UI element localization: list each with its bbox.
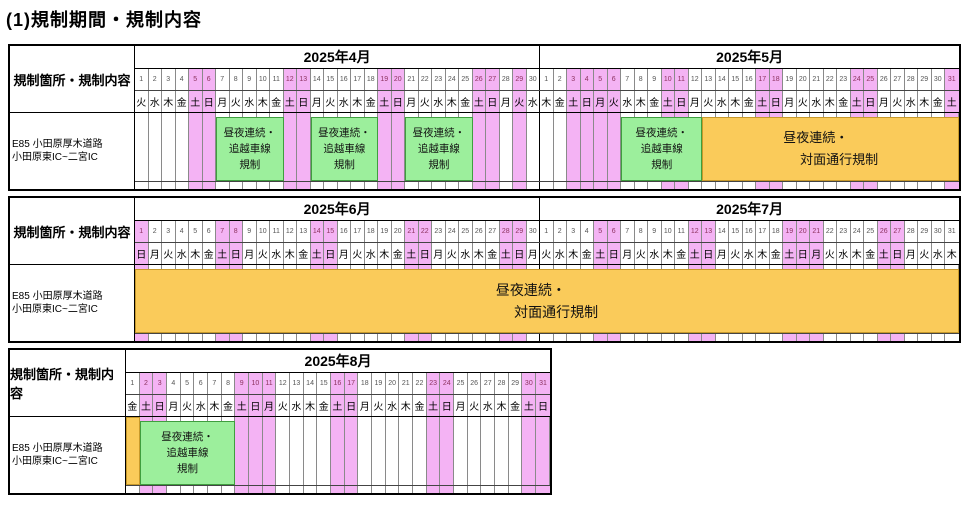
day-of-week-cell: 金 bbox=[270, 91, 284, 112]
schedule-block: 規制箇所・規制内容E85 小田原厚木道路小田原東IC~二宮IC2025年8月12… bbox=[8, 348, 552, 495]
bottom-strip-cell bbox=[945, 334, 959, 341]
bar-label-line: 追越車線 bbox=[323, 141, 365, 157]
day-number-cell: 29 bbox=[918, 221, 932, 242]
day-of-week-cell: 木 bbox=[729, 91, 743, 112]
day-number-cell: 2 bbox=[149, 69, 163, 90]
bottom-strip-cell bbox=[945, 182, 959, 189]
bar-label-line: 追越車線 bbox=[641, 141, 683, 157]
row-header-cell: 規制箇所・規制内容 bbox=[10, 198, 134, 265]
bottom-strip-cell bbox=[513, 182, 527, 189]
day-column bbox=[203, 113, 217, 181]
bottom-strip-cell bbox=[153, 486, 167, 493]
schedule-row: 昼夜連続・追越車線規制 bbox=[126, 417, 550, 486]
bottom-strip-cell bbox=[509, 486, 523, 493]
day-column bbox=[284, 113, 298, 181]
bottom-strip-cell bbox=[878, 334, 892, 341]
day-number-row: 1234567891011121314151617181920212223242… bbox=[135, 221, 959, 243]
day-of-week-cell: 土 bbox=[783, 243, 797, 264]
bottom-strip-cell bbox=[162, 334, 176, 341]
regulation-bar-contraflow: 昼夜連続・対面通行規制 bbox=[135, 269, 959, 333]
day-of-week-cell: 火 bbox=[468, 395, 482, 416]
bottom-strip-cell bbox=[689, 334, 703, 341]
day-number-cell: 13 bbox=[297, 221, 311, 242]
day-number-cell: 15 bbox=[729, 221, 743, 242]
bottom-strip-cell bbox=[851, 182, 865, 189]
day-of-week-cell: 水 bbox=[648, 243, 662, 264]
day-column bbox=[331, 417, 345, 485]
day-of-week-cell: 土 bbox=[311, 243, 325, 264]
day-number-cell: 16 bbox=[338, 221, 352, 242]
bottom-strip-cell bbox=[181, 486, 195, 493]
bottom-strip-cell bbox=[608, 182, 622, 189]
bottom-strip-cell bbox=[378, 334, 392, 341]
day-of-week-cell: 日 bbox=[770, 91, 784, 112]
section-label-line: 小田原東IC~二宮IC bbox=[12, 303, 134, 316]
day-of-week-cell: 日 bbox=[135, 243, 149, 264]
bottom-strip-cell bbox=[162, 182, 176, 189]
day-number-cell: 1 bbox=[540, 221, 554, 242]
bottom-strip-cell bbox=[891, 182, 905, 189]
day-of-week-cell: 日 bbox=[797, 243, 811, 264]
day-of-week-cell: 水 bbox=[338, 91, 352, 112]
day-of-week-cell: 火 bbox=[351, 243, 365, 264]
day-of-week-cell: 木 bbox=[446, 91, 460, 112]
bottom-strip-cell bbox=[513, 334, 527, 341]
bottom-strip-cell bbox=[358, 486, 372, 493]
day-column bbox=[594, 113, 608, 181]
day-number-cell: 8 bbox=[230, 221, 244, 242]
day-of-week-cell: 月 bbox=[716, 243, 730, 264]
day-of-week-cell: 金 bbox=[743, 91, 757, 112]
bottom-strip-cell bbox=[473, 334, 487, 341]
bottom-strip-cell bbox=[446, 334, 460, 341]
bottom-strip-cell bbox=[440, 486, 454, 493]
day-column bbox=[345, 417, 359, 485]
day-column bbox=[263, 417, 277, 485]
bottom-strip-cell bbox=[399, 486, 413, 493]
day-number-cell: 20 bbox=[392, 69, 406, 90]
bottom-strip-cell bbox=[230, 182, 244, 189]
day-number-cell: 19 bbox=[378, 69, 392, 90]
month-header: 2025年4月 bbox=[135, 46, 540, 68]
day-number-cell: 21 bbox=[810, 69, 824, 90]
day-column bbox=[304, 417, 318, 485]
day-of-week-cell: 日 bbox=[486, 91, 500, 112]
day-column bbox=[495, 417, 509, 485]
day-number-cell: 9 bbox=[648, 69, 662, 90]
day-of-week-cell: 木 bbox=[756, 243, 770, 264]
bar-label: 昼夜連続・対面通行規制 bbox=[496, 279, 598, 323]
day-number-cell: 17 bbox=[756, 221, 770, 242]
bottom-strip-cell bbox=[824, 334, 838, 341]
bar-label-line: 昼夜連続・ bbox=[318, 125, 371, 141]
page: (1)規制期間・規制内容 規制箇所・規制内容E85 小田原厚木道路小田原東IC~… bbox=[0, 0, 972, 506]
day-of-week-cell: 水 bbox=[481, 395, 495, 416]
day-number-cell: 15 bbox=[729, 69, 743, 90]
day-column bbox=[149, 113, 163, 181]
day-of-week-cell: 日 bbox=[345, 395, 359, 416]
day-of-week-cell: 土 bbox=[140, 395, 154, 416]
day-number-cell: 5 bbox=[181, 373, 195, 394]
day-number-cell: 27 bbox=[891, 69, 905, 90]
day-number-cell: 1 bbox=[135, 221, 149, 242]
day-number-cell: 20 bbox=[797, 221, 811, 242]
day-number-cell: 5 bbox=[594, 221, 608, 242]
day-of-week-cell: 火 bbox=[419, 91, 433, 112]
day-number-cell: 23 bbox=[432, 69, 446, 90]
day-number-cell: 12 bbox=[276, 373, 290, 394]
day-of-week-cell: 土 bbox=[567, 91, 581, 112]
day-number-cell: 7 bbox=[621, 69, 635, 90]
day-of-week-cell: 火 bbox=[446, 243, 460, 264]
day-number-cell: 1 bbox=[135, 69, 149, 90]
day-number-cell: 13 bbox=[297, 69, 311, 90]
day-number-cell: 18 bbox=[770, 221, 784, 242]
bar-label-line: 昼夜連続・ bbox=[224, 125, 277, 141]
bottom-strip-cell bbox=[635, 334, 649, 341]
day-number-row: 1234567891011121314151617181920212223242… bbox=[135, 69, 959, 91]
day-number-cell: 23 bbox=[837, 221, 851, 242]
bottom-strip-cell bbox=[432, 182, 446, 189]
day-number-cell: 4 bbox=[167, 373, 181, 394]
bar-label-line: 規制 bbox=[239, 157, 260, 173]
section-label-line: E85 小田原厚木道路 bbox=[12, 290, 134, 303]
bottom-strip-cell bbox=[249, 486, 263, 493]
day-column bbox=[249, 417, 263, 485]
bottom-strip-cell bbox=[756, 182, 770, 189]
day-number-cell: 19 bbox=[783, 221, 797, 242]
calendar-area: 2025年6月2025年7月12345678910111213141516171… bbox=[135, 198, 959, 341]
bar-label-line: 対面通行規制 bbox=[496, 301, 598, 323]
bottom-strip-cell bbox=[481, 486, 495, 493]
day-column bbox=[372, 417, 386, 485]
schedule-blocks: 規制箇所・規制内容E85 小田原厚木道路小田原東IC~二宮IC2025年4月20… bbox=[8, 44, 961, 500]
month-header: 2025年5月 bbox=[540, 46, 959, 68]
day-number-cell: 11 bbox=[270, 69, 284, 90]
day-number-cell: 3 bbox=[162, 221, 176, 242]
day-of-week-cell: 金 bbox=[509, 395, 523, 416]
bottom-strip-cell bbox=[756, 334, 770, 341]
day-of-week-cell: 火 bbox=[540, 243, 554, 264]
day-of-week-cell: 火 bbox=[181, 395, 195, 416]
day-number-cell: 19 bbox=[378, 221, 392, 242]
day-number-cell: 14 bbox=[304, 373, 318, 394]
day-number-cell: 15 bbox=[317, 373, 331, 394]
day-of-week-cell: 水 bbox=[290, 395, 304, 416]
day-number-cell: 16 bbox=[743, 69, 757, 90]
day-column bbox=[522, 417, 536, 485]
bottom-strip-cell bbox=[554, 334, 568, 341]
day-number-cell: 24 bbox=[851, 221, 865, 242]
day-of-week-cell: 土 bbox=[189, 91, 203, 112]
bottom-strip-cell bbox=[311, 334, 325, 341]
bottom-strip-cell bbox=[365, 182, 379, 189]
day-of-week-cell: 日 bbox=[153, 395, 167, 416]
bottom-strip-cell bbox=[527, 334, 541, 341]
day-number-cell: 25 bbox=[459, 69, 473, 90]
bottom-strip-cell bbox=[648, 182, 662, 189]
month-header: 2025年6月 bbox=[135, 198, 540, 220]
bar-label-line: 昼夜連続・ bbox=[161, 429, 214, 445]
day-of-week-cell: 水 bbox=[432, 91, 446, 112]
day-number-cell: 26 bbox=[473, 221, 487, 242]
day-of-week-cell: 木 bbox=[918, 91, 932, 112]
bottom-strip-cell bbox=[905, 334, 919, 341]
day-of-week-cell: 月 bbox=[311, 91, 325, 112]
day-column bbox=[486, 113, 500, 181]
day-of-week-cell: 木 bbox=[824, 91, 838, 112]
day-of-week-cell: 金 bbox=[675, 243, 689, 264]
bottom-strip-cell bbox=[235, 486, 249, 493]
bar-label: 昼夜連続・対面通行規制 bbox=[783, 127, 878, 171]
day-of-week-cell: 月 bbox=[810, 243, 824, 264]
bottom-strip-cell bbox=[257, 182, 271, 189]
day-number-cell: 7 bbox=[621, 221, 635, 242]
day-number-cell: 6 bbox=[608, 221, 622, 242]
bottom-strip-cell bbox=[365, 334, 379, 341]
bottom-strip-cell bbox=[230, 334, 244, 341]
day-column bbox=[427, 417, 441, 485]
day-column bbox=[276, 417, 290, 485]
day-column bbox=[290, 417, 304, 485]
bar-label-line: 規制 bbox=[651, 157, 672, 173]
bottom-strip-cell bbox=[338, 334, 352, 341]
bottom-strip-cell bbox=[126, 486, 140, 493]
bottom-strip-cell bbox=[270, 182, 284, 189]
bottom-strip-cell bbox=[536, 486, 550, 493]
bottom-strip-cell bbox=[621, 334, 635, 341]
page-title: (1)規制期間・規制内容 bbox=[6, 6, 202, 32]
day-number-cell: 3 bbox=[153, 373, 167, 394]
bar-label-line: 規制 bbox=[177, 461, 198, 477]
day-of-week-cell: 金 bbox=[770, 243, 784, 264]
day-of-week-cell: 日 bbox=[419, 243, 433, 264]
row-header-cell: 規制箇所・規制内容 bbox=[10, 350, 125, 417]
day-of-week-cell: 土 bbox=[331, 395, 345, 416]
day-of-week-row: 金土日月火水木金土日月火水木金土日月火水木金土日月火水木金土日 bbox=[126, 395, 550, 417]
bottom-strip-cell bbox=[189, 182, 203, 189]
bottom-strip-cell bbox=[810, 334, 824, 341]
day-number-cell: 19 bbox=[783, 69, 797, 90]
bar-label-line: 昼夜連続・ bbox=[783, 127, 878, 149]
bottom-strip-cell bbox=[284, 334, 298, 341]
bottom-strip-row bbox=[135, 182, 959, 189]
bar-label-line: 対面通行規制 bbox=[783, 149, 878, 171]
day-number-cell: 19 bbox=[372, 373, 386, 394]
day-of-week-cell: 土 bbox=[878, 243, 892, 264]
bottom-strip-cell bbox=[459, 182, 473, 189]
day-of-week-cell: 木 bbox=[495, 395, 509, 416]
day-number-cell: 22 bbox=[419, 221, 433, 242]
bottom-strip-cell bbox=[351, 182, 365, 189]
schedule-block: 規制箇所・規制内容E85 小田原厚木道路小田原東IC~二宮IC2025年4月20… bbox=[8, 44, 961, 191]
section-label-line: E85 小田原厚木道路 bbox=[12, 138, 134, 151]
bottom-strip-cell bbox=[459, 334, 473, 341]
day-number-cell: 1 bbox=[540, 69, 554, 90]
bottom-strip-cell bbox=[263, 486, 277, 493]
day-number-cell: 5 bbox=[189, 69, 203, 90]
day-number-cell: 11 bbox=[263, 373, 277, 394]
bottom-strip-cell bbox=[837, 182, 851, 189]
day-of-week-cell: 火 bbox=[608, 91, 622, 112]
bottom-strip-cell bbox=[216, 182, 230, 189]
day-number-cell: 24 bbox=[446, 221, 460, 242]
section-label: E85 小田原厚木道路小田原東IC~二宮IC bbox=[10, 113, 134, 189]
day-of-week-cell: 水 bbox=[837, 243, 851, 264]
bottom-strip-cell bbox=[243, 334, 257, 341]
day-of-week-cell: 土 bbox=[945, 91, 959, 112]
day-number-cell: 12 bbox=[284, 69, 298, 90]
day-of-week-cell: 月 bbox=[621, 243, 635, 264]
bottom-strip-cell bbox=[311, 182, 325, 189]
day-number-cell: 18 bbox=[365, 221, 379, 242]
day-of-week-cell: 水 bbox=[365, 243, 379, 264]
bottom-strip-cell bbox=[495, 486, 509, 493]
day-of-week-cell: 火 bbox=[635, 243, 649, 264]
bottom-strip-cell bbox=[405, 182, 419, 189]
bottom-strip-cell bbox=[932, 182, 946, 189]
bottom-strip-cell bbox=[468, 486, 482, 493]
day-of-week-cell: 金 bbox=[222, 395, 236, 416]
day-of-week-cell: 日 bbox=[297, 91, 311, 112]
bottom-strip-cell bbox=[837, 334, 851, 341]
bottom-strip-row bbox=[135, 334, 959, 341]
day-number-cell: 13 bbox=[290, 373, 304, 394]
day-number-cell: 28 bbox=[905, 69, 919, 90]
bottom-strip-cell bbox=[419, 334, 433, 341]
bottom-strip-cell bbox=[176, 334, 190, 341]
day-number-cell: 28 bbox=[500, 69, 514, 90]
day-number-cell: 17 bbox=[756, 69, 770, 90]
regulation-bar-lane: 昼夜連続・追越車線規制 bbox=[405, 117, 473, 181]
day-number-cell: 12 bbox=[689, 69, 703, 90]
section-label: E85 小田原厚木道路小田原東IC~二宮IC bbox=[10, 265, 134, 341]
regulation-bar-lane: 昼夜連続・追越車線規制 bbox=[216, 117, 284, 181]
bottom-strip-cell bbox=[324, 182, 338, 189]
bottom-strip-cell bbox=[222, 486, 236, 493]
day-of-week-cell: 土 bbox=[689, 243, 703, 264]
day-of-week-cell: 火 bbox=[324, 91, 338, 112]
day-of-week-cell: 水 bbox=[176, 243, 190, 264]
day-of-week-cell: 水 bbox=[905, 91, 919, 112]
bottom-strip-cell bbox=[331, 486, 345, 493]
day-of-week-cell: 日 bbox=[608, 243, 622, 264]
day-number-cell: 29 bbox=[509, 373, 523, 394]
bottom-strip-cell bbox=[427, 486, 441, 493]
bottom-strip-cell bbox=[527, 182, 541, 189]
bar-label-line: 追越車線 bbox=[229, 141, 271, 157]
day-number-cell: 25 bbox=[454, 373, 468, 394]
day-number-cell: 2 bbox=[554, 69, 568, 90]
bottom-strip-cell bbox=[567, 334, 581, 341]
day-of-week-cell: 火 bbox=[824, 243, 838, 264]
bottom-strip-cell bbox=[486, 334, 500, 341]
month-row: 2025年8月 bbox=[126, 350, 550, 373]
bottom-strip-row bbox=[126, 486, 550, 493]
day-number-cell: 9 bbox=[243, 221, 257, 242]
day-number-cell: 1 bbox=[126, 373, 140, 394]
day-number-cell: 30 bbox=[527, 69, 541, 90]
day-number-cell: 10 bbox=[257, 221, 271, 242]
bottom-strip-cell bbox=[702, 334, 716, 341]
day-column bbox=[135, 113, 149, 181]
day-number-cell: 31 bbox=[945, 221, 959, 242]
bottom-strip-cell bbox=[648, 334, 662, 341]
day-number-cell: 4 bbox=[176, 221, 190, 242]
bottom-strip-cell bbox=[216, 334, 230, 341]
day-of-week-cell: 火 bbox=[372, 395, 386, 416]
day-of-week-cell: 土 bbox=[427, 395, 441, 416]
bar-label-line: 昼夜連続・ bbox=[413, 125, 466, 141]
day-of-week-cell: 火 bbox=[702, 91, 716, 112]
day-of-week-cell: 月 bbox=[454, 395, 468, 416]
day-of-week-cell: 月 bbox=[432, 243, 446, 264]
day-number-cell: 9 bbox=[235, 373, 249, 394]
bottom-strip-cell bbox=[594, 182, 608, 189]
row-header-column: 規制箇所・規制内容E85 小田原厚木道路小田原東IC~二宮IC bbox=[10, 350, 126, 493]
bottom-strip-cell bbox=[135, 334, 149, 341]
day-of-week-cell: 金 bbox=[297, 243, 311, 264]
day-of-week-cell: 木 bbox=[399, 395, 413, 416]
day-number-cell: 11 bbox=[270, 221, 284, 242]
bottom-strip-cell bbox=[149, 182, 163, 189]
day-column bbox=[378, 113, 392, 181]
day-of-week-cell: 金 bbox=[126, 395, 140, 416]
day-of-week-cell: 木 bbox=[567, 243, 581, 264]
schedule-row: 昼夜連続・追越車線規制昼夜連続・追越車線規制昼夜連続・追越車線規制昼夜連続・追越… bbox=[135, 113, 959, 182]
row-header-cell: 規制箇所・規制内容 bbox=[10, 46, 134, 113]
day-of-week-cell: 土 bbox=[662, 91, 676, 112]
day-of-week-cell: 火 bbox=[230, 91, 244, 112]
day-number-cell: 13 bbox=[702, 221, 716, 242]
day-of-week-cell: 日 bbox=[249, 395, 263, 416]
day-of-week-cell: 水 bbox=[149, 91, 163, 112]
day-column bbox=[540, 113, 554, 181]
day-of-week-cell: 月 bbox=[243, 243, 257, 264]
bottom-strip-cell bbox=[149, 334, 163, 341]
bottom-strip-cell bbox=[208, 486, 222, 493]
day-column bbox=[440, 417, 454, 485]
day-of-week-cell: 日 bbox=[891, 243, 905, 264]
day-of-week-cell: 木 bbox=[351, 91, 365, 112]
day-number-cell: 20 bbox=[797, 69, 811, 90]
day-of-week-cell: 金 bbox=[203, 243, 217, 264]
section-label-line: E85 小田原厚木道路 bbox=[12, 442, 125, 455]
bottom-strip-cell bbox=[540, 182, 554, 189]
calendar-area: 2025年8月123456789101112131415161718192021… bbox=[126, 350, 550, 493]
bottom-strip-cell bbox=[891, 334, 905, 341]
day-of-week-cell: 日 bbox=[581, 91, 595, 112]
bottom-strip-cell bbox=[729, 334, 743, 341]
day-number-cell: 5 bbox=[189, 221, 203, 242]
day-number-cell: 9 bbox=[648, 221, 662, 242]
bottom-strip-cell bbox=[317, 486, 331, 493]
day-of-week-cell: 土 bbox=[522, 395, 536, 416]
day-of-week-cell: 金 bbox=[459, 91, 473, 112]
bottom-strip-cell bbox=[297, 334, 311, 341]
day-column bbox=[358, 417, 372, 485]
day-of-week-cell: 木 bbox=[284, 243, 298, 264]
day-number-cell: 21 bbox=[399, 373, 413, 394]
day-number-cell: 14 bbox=[716, 69, 730, 90]
regulation-bar-lane: 昼夜連続・追越車線規制 bbox=[621, 117, 702, 181]
day-of-week-cell: 水 bbox=[932, 243, 946, 264]
day-number-cell: 26 bbox=[878, 221, 892, 242]
day-column bbox=[386, 417, 400, 485]
bottom-strip-cell bbox=[540, 334, 554, 341]
bottom-strip-cell bbox=[770, 182, 784, 189]
day-number-cell: 30 bbox=[522, 373, 536, 394]
